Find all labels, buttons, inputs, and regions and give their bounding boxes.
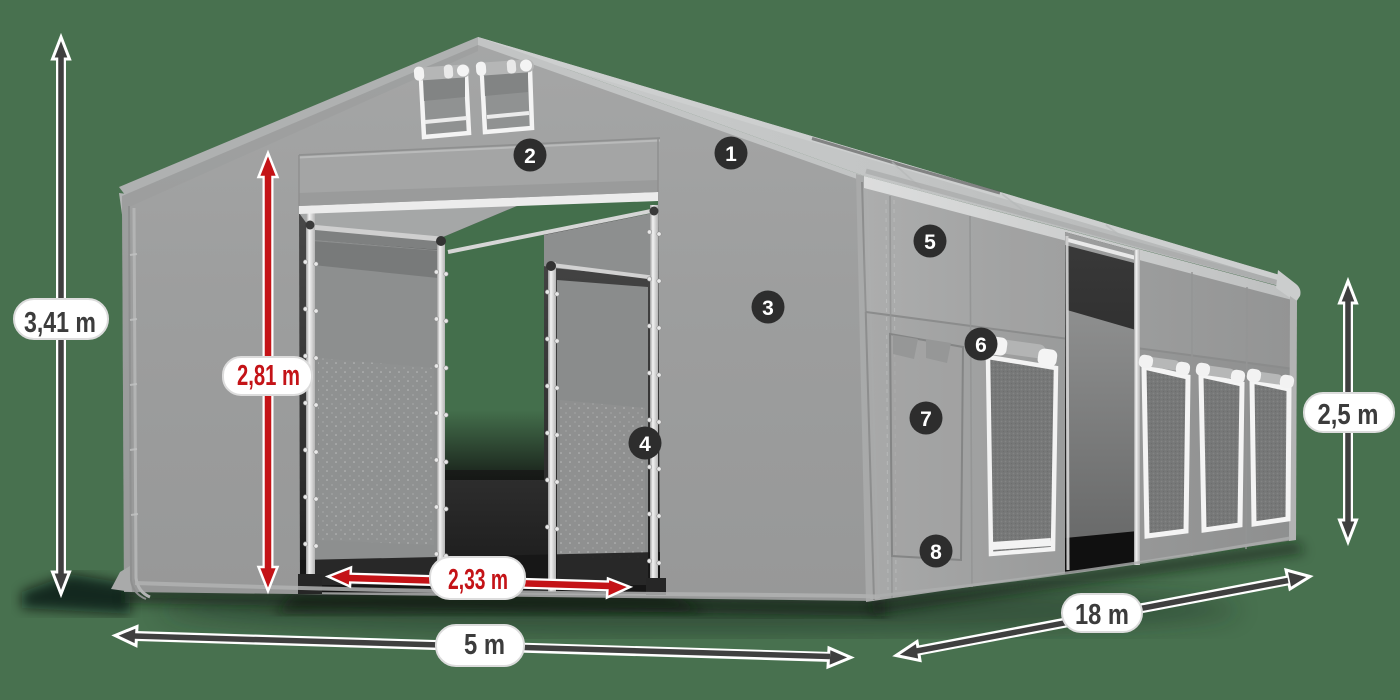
svg-text:3: 3 <box>762 297 774 320</box>
svg-text:2,5 m: 2,5 m <box>1318 399 1379 431</box>
svg-text:7: 7 <box>920 408 932 431</box>
svg-text:5 m: 5 m <box>464 629 505 661</box>
svg-text:2: 2 <box>524 145 536 168</box>
svg-text:2,33 m: 2,33 m <box>448 564 508 596</box>
svg-text:18 m: 18 m <box>1075 599 1129 631</box>
svg-text:3,41 m: 3,41 m <box>24 307 96 339</box>
svg-text:1: 1 <box>725 143 737 166</box>
svg-text:6: 6 <box>975 334 987 357</box>
svg-text:8: 8 <box>930 541 942 564</box>
svg-text:4: 4 <box>639 433 651 456</box>
svg-text:5: 5 <box>924 231 936 254</box>
svg-text:2,81 m: 2,81 m <box>237 360 300 392</box>
